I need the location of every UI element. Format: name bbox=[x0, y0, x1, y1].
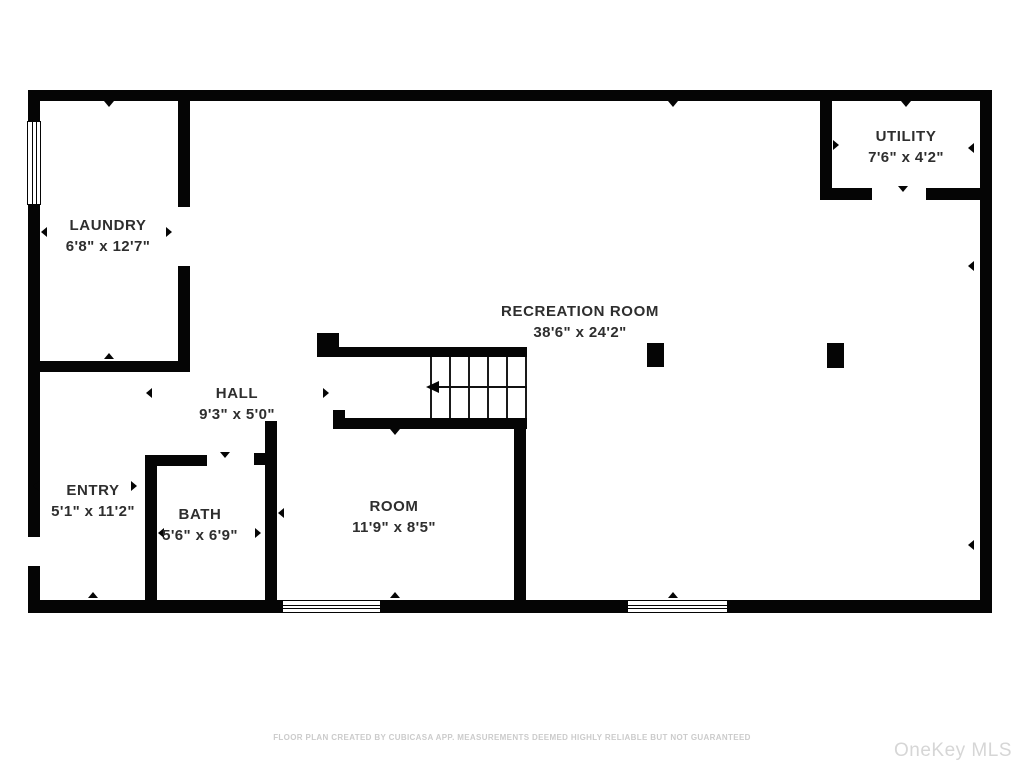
wall-utility-bottom-right bbox=[926, 188, 980, 200]
measurement-tick bbox=[968, 540, 974, 550]
measurement-tick bbox=[104, 101, 114, 107]
stairs-treads bbox=[430, 357, 527, 418]
window-pane-line bbox=[628, 605, 727, 606]
measurement-tick bbox=[668, 592, 678, 598]
room-name: LAUNDRY bbox=[66, 215, 151, 236]
wall-utility-bottom-left bbox=[820, 188, 872, 200]
wall-stairs-top bbox=[335, 347, 527, 357]
wall-outer-left-lower bbox=[28, 566, 40, 613]
window-pane-line bbox=[628, 608, 727, 609]
room-dimensions: 11'9" x 8'5" bbox=[352, 517, 436, 538]
wall-laundry-right-lower bbox=[178, 266, 190, 372]
room-dimensions: 9'3" x 5'0" bbox=[199, 404, 275, 425]
watermark-onekey-mls: OneKey MLS bbox=[894, 740, 1012, 762]
room-label-recreation-room: RECREATION ROOM 38'6" x 24'2" bbox=[501, 301, 659, 343]
room-label-laundry: LAUNDRY 6'8" x 12'7" bbox=[66, 215, 151, 257]
stairs-run-line bbox=[436, 386, 527, 388]
measurement-tick bbox=[323, 388, 329, 398]
measurement-tick bbox=[104, 353, 114, 359]
room-name: RECREATION ROOM bbox=[501, 301, 659, 322]
measurement-tick bbox=[898, 186, 908, 192]
wall-outer-left-upper bbox=[28, 90, 40, 124]
measurement-tick bbox=[220, 452, 230, 458]
measurement-tick bbox=[901, 101, 911, 107]
measurement-tick bbox=[833, 140, 839, 150]
floor-plan-canvas: LAUNDRY 6'8" x 12'7" UTILITY 7'6" x 4'2"… bbox=[0, 0, 1024, 768]
wall-bath-top bbox=[145, 455, 207, 466]
window-bottom-left bbox=[282, 600, 381, 613]
room-name: BATH bbox=[162, 504, 238, 525]
room-dimensions: 5'1" x 11'2" bbox=[51, 501, 135, 522]
measurement-tick bbox=[146, 388, 152, 398]
measurement-tick bbox=[968, 261, 974, 271]
wall-stairs-bottom-cap bbox=[333, 410, 345, 429]
wall-stairs-bottom bbox=[333, 418, 527, 429]
measurement-tick bbox=[278, 508, 284, 518]
room-dimensions: 6'8" x 12'7" bbox=[66, 236, 151, 257]
measurement-tick bbox=[33, 481, 39, 491]
wall-bath-left bbox=[145, 455, 157, 600]
measurement-tick bbox=[390, 592, 400, 598]
wall-outer-top bbox=[28, 90, 992, 101]
wall-outer-right bbox=[980, 90, 992, 613]
wall-room-right bbox=[514, 418, 526, 613]
measurement-tick bbox=[255, 528, 261, 538]
room-label-hall: HALL 9'3" x 5'0" bbox=[199, 383, 275, 425]
room-label-utility: UTILITY 7'6" x 4'2" bbox=[868, 126, 944, 168]
window-bottom-right bbox=[627, 600, 728, 613]
window-pane-line bbox=[32, 122, 33, 204]
wall-outer-bottom bbox=[28, 600, 992, 613]
wall-laundry-bottom bbox=[28, 361, 190, 372]
window-pane-line bbox=[283, 605, 380, 606]
window-laundry-left bbox=[27, 121, 41, 205]
room-name: UTILITY bbox=[868, 126, 944, 147]
wall-bath-room-divider bbox=[265, 421, 277, 600]
footer-disclaimer: FLOOR PLAN CREATED BY CUBICASA APP. MEAS… bbox=[0, 733, 1024, 742]
room-name: HALL bbox=[199, 383, 275, 404]
room-label-room: ROOM 11'9" x 8'5" bbox=[352, 496, 436, 538]
measurement-tick bbox=[390, 429, 400, 435]
measurement-tick bbox=[166, 227, 172, 237]
room-name: ROOM bbox=[352, 496, 436, 517]
window-pane-line bbox=[36, 122, 37, 204]
room-dimensions: 38'6" x 24'2" bbox=[501, 322, 659, 343]
measurement-tick bbox=[41, 227, 47, 237]
measurement-tick bbox=[968, 143, 974, 153]
support-column bbox=[827, 343, 844, 368]
measurement-tick bbox=[88, 592, 98, 598]
window-pane-line bbox=[283, 608, 380, 609]
room-name: ENTRY bbox=[51, 480, 135, 501]
wall-laundry-right-upper bbox=[178, 101, 190, 207]
room-label-entry: ENTRY 5'1" x 11'2" bbox=[51, 480, 135, 522]
room-dimensions: 5'6" x 6'9" bbox=[162, 525, 238, 546]
stairs-direction-arrow-icon bbox=[426, 381, 439, 393]
support-column bbox=[647, 343, 664, 367]
wall-utility-left bbox=[820, 101, 832, 200]
measurement-tick bbox=[668, 101, 678, 107]
room-label-bath: BATH 5'6" x 6'9" bbox=[162, 504, 238, 546]
room-dimensions: 7'6" x 4'2" bbox=[868, 147, 944, 168]
